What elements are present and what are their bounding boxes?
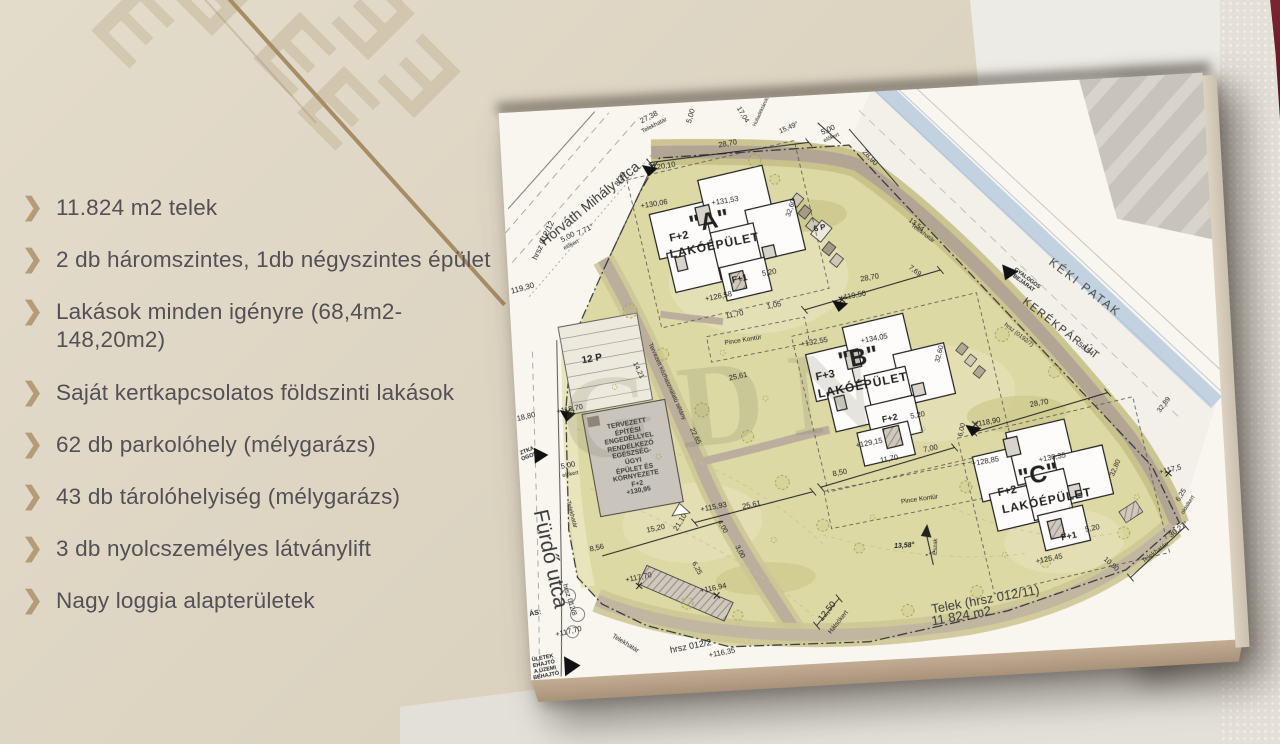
plan-label: 8,50 — [832, 468, 848, 479]
feature-item: ❯Nagy loggia alapterületek — [22, 587, 492, 615]
plan-label: +118,70 — [556, 403, 584, 416]
feature-item-label: Saját kertkapcsolatos földszinti lakások — [56, 379, 454, 407]
plan-label: 4,00 — [715, 519, 728, 535]
plan-label: 6,00 — [957, 422, 968, 437]
plan-label: Telekhatár — [611, 633, 640, 655]
plan-label: 28,70 — [718, 138, 738, 150]
feature-item: ❯3 db nyolcszemélyes látványlift — [22, 535, 492, 563]
plan-label: "A" — [687, 205, 732, 239]
feature-item-label: Lakások minden igényre (68,4m2-148,20m2) — [56, 298, 492, 354]
plan-label: 11,70 — [725, 309, 745, 321]
plan-label: 5,20 — [761, 267, 777, 278]
plan-label: 6,25 — [689, 561, 702, 577]
plan-label: előkert — [562, 470, 579, 479]
plan-label: +116,35 — [708, 646, 736, 659]
plan-label: ÜLETEK EHAJTÓ A ÜZEMI BEHAJTÓ — [529, 653, 560, 680]
plan-label: Pince Kontúr — [901, 493, 939, 506]
plan-labels-layer: Horváth Mihály utcahrsz 012/12119,3027,3… — [499, 73, 1236, 681]
plan-label: 28,90 — [860, 148, 879, 167]
feature-item-label: 62 db parkolóhely (mélygarázs) — [56, 431, 376, 459]
plan-label: 32,60 — [785, 199, 798, 218]
plan-label: 3,00 — [733, 544, 746, 560]
plan-label: 32,80 — [1109, 459, 1123, 478]
plan-label: TERVEZETT ÉPÍTÉSI ENGEDÉLLYEL RENDELKEZŐ… — [601, 416, 663, 500]
plan-label: F+3 — [815, 368, 836, 384]
plan-label: 17,04 — [734, 106, 750, 125]
feature-item-label: 11.824 m2 telek — [56, 194, 217, 222]
plan-label: "C" — [1016, 459, 1061, 493]
plan-label: 28,70 — [1029, 398, 1049, 410]
feature-item: ❯11.824 m2 telek — [22, 194, 492, 222]
plan-label: F+1 — [731, 272, 748, 285]
chevron-bullet-icon: ❯ — [22, 244, 43, 274]
plan-label: GYALOGOS BEJÁRAT — [1009, 267, 1041, 296]
plan-label: 15,49° — [778, 121, 800, 136]
chevron-bullet-icon: ❯ — [22, 377, 43, 407]
feature-item: ❯Lakások minden igényre (68,4m2-148,20m2… — [22, 298, 492, 354]
plan-label: +130,06 — [640, 198, 668, 211]
plan-label: F+2 — [997, 484, 1018, 500]
plan-label: Horváth Mihály utca — [537, 159, 643, 249]
plan-label: 119,30 — [510, 282, 535, 297]
plan-label: Hulladéktároló — [753, 96, 771, 127]
plan-label: 8,56 — [589, 543, 605, 554]
chevron-bullet-icon: ❯ — [22, 533, 43, 563]
plan-label: 32,60 — [934, 345, 946, 364]
plan-label: 10,80 — [1101, 556, 1119, 574]
plan-label: 7,00 — [923, 443, 939, 454]
plan-label: 13,58° — [894, 542, 915, 551]
plan-label: 30,27° — [1167, 520, 1190, 540]
logo-pattern-glyph: E — [161, 0, 274, 51]
plan-label: +117,5 — [1158, 463, 1182, 476]
plan-label: 32,89 — [1156, 396, 1173, 415]
plan-label: +115,93 — [700, 501, 728, 514]
plan-label: +129,15 — [855, 437, 883, 451]
plan-label: +118,90 — [973, 416, 1001, 429]
plan-label: Pince Kontúr — [724, 334, 762, 347]
plan-label: Észak — [933, 538, 940, 555]
plan-label: Tervezett közhasználatú sétány — [646, 342, 687, 421]
feature-item: ❯62 db parkolóhely (mélygarázs) — [22, 431, 492, 459]
feature-item-label: Nagy loggia alapterületek — [56, 587, 315, 615]
chevron-bullet-icon: ❯ — [22, 296, 43, 326]
plan-label: +117,70 — [555, 625, 583, 639]
plan-label: +132,55 — [800, 336, 828, 349]
feature-list: ❯11.824 m2 telek❯2 db háromszintes, 1db … — [22, 194, 492, 615]
plan-label: 11,70 — [879, 453, 899, 465]
plan-label: hrsz (0192/7) — [1002, 322, 1034, 349]
plan-label: ÁS: — [529, 609, 542, 619]
plan-label: 5,00 — [685, 108, 697, 124]
plan-label: 7,69 — [907, 264, 923, 278]
feature-item: ❯Saját kertkapcsolatos földszinti lakáso… — [22, 379, 492, 407]
plan-label: hrsz 012/2 — [669, 637, 712, 655]
plan-label: 21,10 — [672, 512, 689, 532]
plan-label: 6 P — [813, 223, 827, 234]
feature-item-label: 43 db tárolóhelyiség (mélygarázs) — [56, 483, 400, 511]
plan-label: ZTKA OGOS — [518, 445, 538, 462]
chevron-bullet-icon: ❯ — [22, 585, 43, 615]
plan-label: KÉKI PATAK — [1046, 256, 1123, 320]
feature-item-label: 2 db háromszintes, 1db négyszintes épüle… — [56, 246, 491, 274]
plan-label: +126,58 — [704, 290, 732, 304]
feature-item: ❯43 db tárolóhelyiség (mélygarázs) — [22, 483, 492, 511]
chevron-bullet-icon: ❯ — [22, 481, 43, 511]
plan-label: F+2 — [881, 412, 898, 425]
plan-label: Telekhatár — [1141, 541, 1169, 565]
page: { "background": { "wall_color": "#ddd4c2… — [0, 0, 1280, 744]
plan-label: "B" — [836, 342, 881, 376]
plan-label: +120,10 — [648, 161, 676, 174]
plan-label: F+1 — [1060, 530, 1077, 543]
plan-label: 12 P — [581, 352, 603, 367]
plan-label: 7,71° — [576, 223, 595, 239]
plan-label: 5,20 — [1085, 523, 1101, 534]
site-plan-paper: GDN Horváth Mihály utcahrsz 012/12119,30… — [499, 73, 1236, 681]
plan-label: 15,20 — [646, 523, 666, 535]
feature-item: ❯2 db háromszintes, 1db négyszintes épül… — [22, 246, 492, 274]
plan-label: +117,70 — [625, 571, 653, 584]
plan-label: Telekhatár — [564, 500, 578, 528]
site-plan-board: GDN Horváth Mihály utcahrsz 012/12119,30… — [499, 72, 1251, 702]
plan-label: 25,61 — [728, 371, 748, 383]
plan-label: +116,94 — [699, 582, 727, 595]
chevron-bullet-icon: ❯ — [22, 429, 43, 459]
feature-item-label: 3 db nyolcszemélyes látványlift — [56, 535, 371, 563]
plan-label: 5,20 — [910, 410, 926, 421]
plan-label: 22,65 — [687, 427, 702, 446]
plan-label: 14,21 — [630, 361, 645, 380]
chevron-bullet-icon: ❯ — [22, 192, 43, 222]
plan-label: +128,85 — [971, 455, 999, 468]
plan-label: 5,00 — [560, 460, 576, 471]
plan-label: +125,45 — [1035, 552, 1063, 566]
plan-label: 28,70 — [860, 272, 880, 284]
plan-label: +119,50 — [839, 290, 867, 303]
plan-label: 1,05 — [766, 300, 782, 311]
plan-label: 25,61 — [742, 499, 762, 511]
plan-label: 18,80 — [516, 411, 536, 423]
